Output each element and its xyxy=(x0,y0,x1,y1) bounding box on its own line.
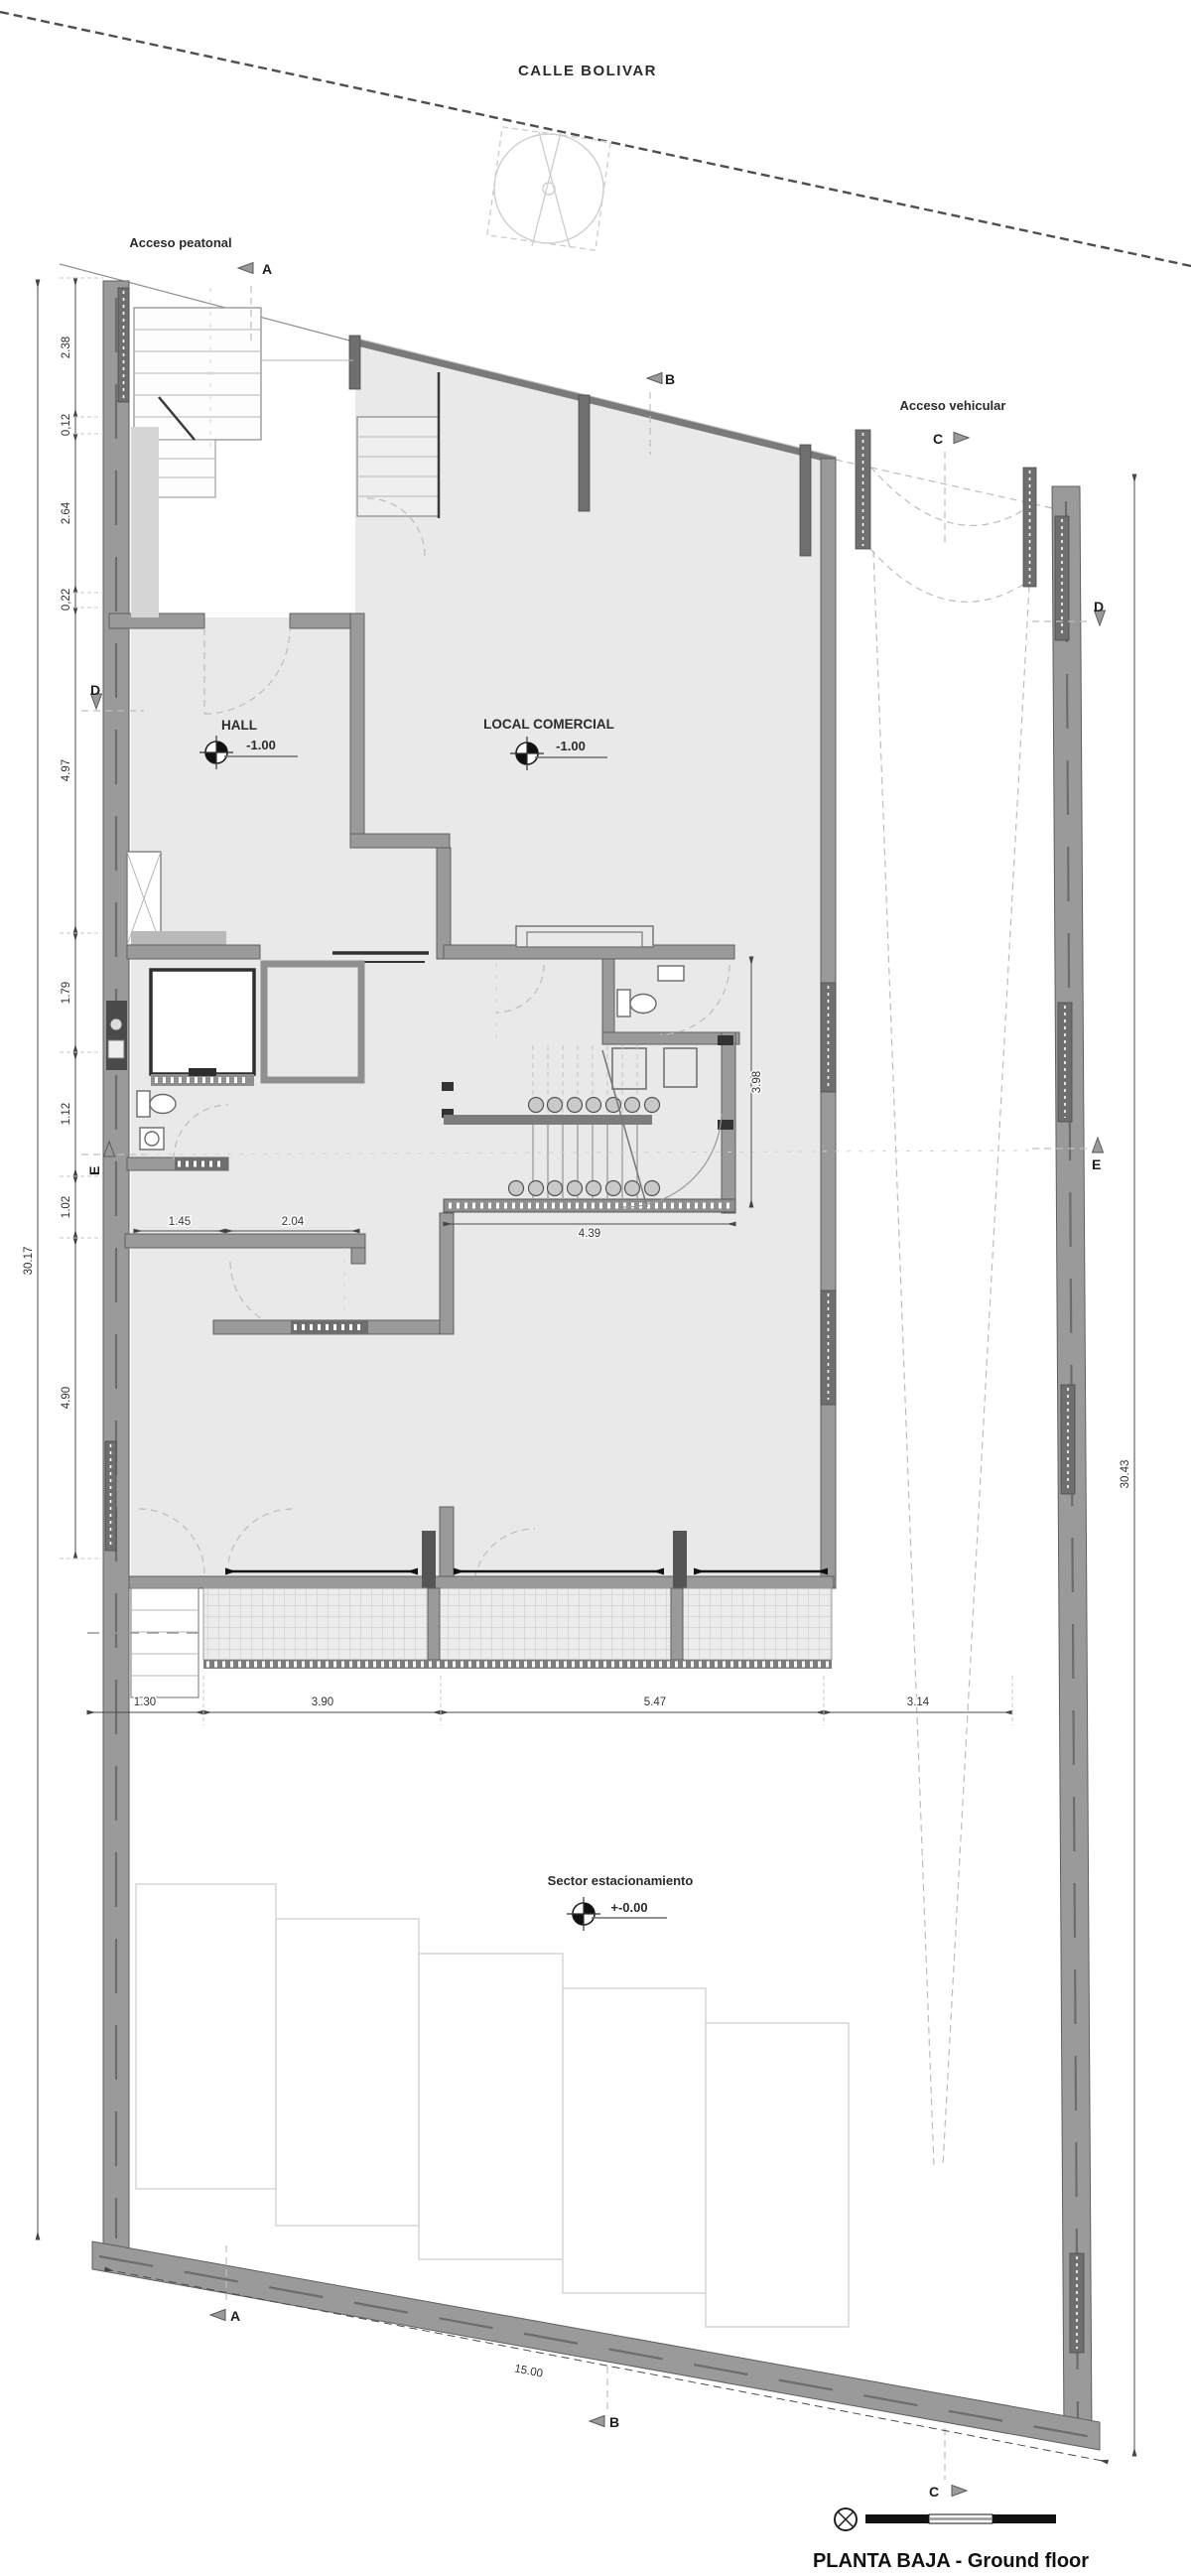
floor-plan-sheet: CALLE BOLIVAR Acceso peatonal Acceso veh… xyxy=(0,0,1191,2576)
dim-room-1: 1.45 xyxy=(169,1216,191,1228)
parking-stalls xyxy=(136,1884,849,2327)
parking-stall xyxy=(563,1988,706,2293)
building-right-wall xyxy=(821,459,836,1588)
dim-bottom-2: 3.90 xyxy=(312,1696,333,1708)
section-e-left: E xyxy=(86,1166,102,1175)
parking-stall xyxy=(276,1919,419,2226)
dim-stair-width: 4.39 xyxy=(579,1228,600,1240)
right-boundary-wall xyxy=(1052,486,1092,2434)
left-boundary-wall xyxy=(103,281,129,2253)
north-scale-symbol xyxy=(835,2508,857,2530)
building-floor xyxy=(131,342,834,1588)
pedestrian-access-label: Acceso peatonal xyxy=(129,235,231,250)
dim-left-5: 4.97 xyxy=(61,759,72,781)
dim-left-3: 2.64 xyxy=(61,501,72,524)
dim-left-6: 1.79 xyxy=(61,982,72,1004)
dim-stair-depth2: 3.98 xyxy=(751,1071,763,1093)
dim-left-8: 1.02 xyxy=(61,1196,72,1218)
floor-plan-drawing: CALLE BOLIVAR Acceso peatonal Acceso veh… xyxy=(0,0,1191,2576)
section-a-top: A xyxy=(262,261,272,277)
parking-stall xyxy=(419,1954,563,2259)
section-b-top: B xyxy=(665,371,675,387)
dim-bottom-4: 3.14 xyxy=(907,1696,930,1708)
hall-label: HALL xyxy=(221,718,257,733)
dim-left-1: 2.38 xyxy=(61,337,72,358)
scale-bar xyxy=(865,2514,1056,2523)
tree-symbol xyxy=(487,127,610,250)
section-c-bottom: C xyxy=(929,2484,939,2500)
dim-left-total: 30.17 xyxy=(23,1247,35,1276)
parking-label: Sector estacionamiento xyxy=(548,1873,694,1888)
street-line xyxy=(0,12,1191,266)
driveway-guides xyxy=(870,467,1032,2166)
entry-stair xyxy=(134,288,353,497)
street-name: CALLE BOLIVAR xyxy=(518,63,657,79)
section-b-bottom: B xyxy=(609,2414,619,2430)
section-d-right: D xyxy=(1094,599,1104,614)
dim-front-total: 15.00 xyxy=(513,2363,544,2379)
dim-left-7: 1.12 xyxy=(61,1103,72,1125)
dim-right-total: 30.43 xyxy=(1120,1460,1131,1489)
dim-left-2: 0,12 xyxy=(61,414,72,436)
dim-left-4: 0,22 xyxy=(61,589,72,610)
vehicular-access-label: Acceso vehicular xyxy=(900,398,1006,413)
local-level: -1.00 xyxy=(556,739,586,753)
parking-level: +-0.00 xyxy=(610,1900,647,1915)
parking-stall xyxy=(136,1884,276,2189)
parking-stall xyxy=(706,2023,849,2327)
section-a-bottom: A xyxy=(230,2308,240,2324)
section-c-top: C xyxy=(933,431,943,447)
dim-left-9: 4.90 xyxy=(61,1387,72,1409)
local-label: LOCAL COMERCIAL xyxy=(483,717,614,732)
section-d-left: D xyxy=(90,682,100,698)
section-e-right: E xyxy=(1092,1156,1101,1172)
dim-bottom-3: 5.47 xyxy=(644,1696,666,1708)
sheet-title: PLANTA BAJA - Ground floor xyxy=(813,2550,1089,2572)
gate-posts xyxy=(856,430,1036,587)
dim-bottom-1: 1.30 xyxy=(134,1696,156,1708)
hall-level: -1.00 xyxy=(246,738,276,752)
dim-room-2: 2.04 xyxy=(282,1216,305,1228)
